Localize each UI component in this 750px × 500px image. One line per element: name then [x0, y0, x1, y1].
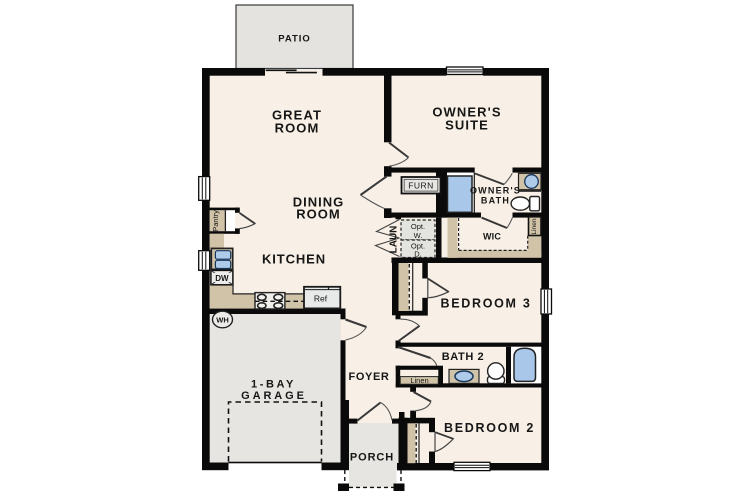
svg-text:ROOM: ROOM — [296, 207, 340, 222]
svg-text:BEDROOM 2: BEDROOM 2 — [444, 421, 535, 435]
svg-text:PORCH: PORCH — [350, 451, 394, 463]
svg-text:WH: WH — [216, 315, 229, 324]
svg-text:PATIO: PATIO — [278, 34, 311, 45]
svg-text:Pantry: Pantry — [211, 210, 220, 232]
svg-text:Ref: Ref — [314, 293, 328, 303]
svg-text:OWNER'S: OWNER'S — [470, 186, 521, 196]
svg-text:SUITE: SUITE — [445, 117, 489, 132]
svg-text:BATH: BATH — [481, 196, 510, 206]
svg-text:1-BAY: 1-BAY — [251, 378, 296, 390]
svg-text:Linen: Linen — [531, 218, 538, 234]
svg-text:BATH 2: BATH 2 — [442, 351, 485, 363]
svg-text:WIC: WIC — [483, 231, 501, 241]
svg-text:FOYER: FOYER — [349, 371, 390, 383]
svg-text:Opt.: Opt. — [411, 222, 425, 231]
svg-text:ROOM: ROOM — [275, 120, 320, 135]
svg-text:GARAGE: GARAGE — [241, 390, 307, 402]
svg-text:LAUN: LAUN — [389, 226, 400, 254]
svg-text:Linen: Linen — [410, 376, 428, 385]
svg-text:BEDROOM 3: BEDROOM 3 — [440, 296, 531, 310]
svg-text:W.: W. — [414, 231, 423, 240]
svg-text:KITCHEN: KITCHEN — [262, 252, 326, 267]
svg-text:DW: DW — [215, 274, 229, 283]
svg-text:D.: D. — [414, 249, 422, 258]
svg-text:FURN: FURN — [408, 180, 434, 190]
